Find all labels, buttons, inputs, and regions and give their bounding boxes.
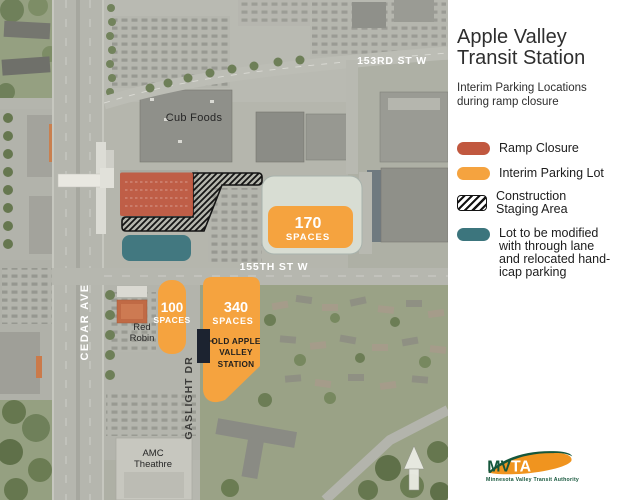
place-label-cub-foods: Cub Foods [166,112,223,124]
subtitle-line-2: during ramp closure [457,96,622,110]
legend: Ramp Closure Interim Parking Lot Constru… [457,142,622,279]
modified-label-line-4: icap parking [499,266,610,279]
modified-lot-swatch [457,228,490,241]
place-label-old-station-2: VALLEY [219,348,253,357]
legend-item-ramp-closure: Ramp Closure [457,142,622,155]
place-label-amc-1: AMC [142,448,163,459]
mvta-logo-graphic: MVTA [486,448,580,476]
logo-acronym-mv: MV [487,458,511,475]
page-subtitle: Interim Parking Locations during ramp cl… [457,82,622,109]
street-label-153rd: 153RD ST W [357,55,427,67]
title-line-1: Apple Valley [457,27,622,48]
legend-item-modified-lot: Lot to be modified with through lane and… [457,227,622,279]
aerial-map: 153RD ST W 155TH ST W CEDAR AVE GASLIGHT… [0,0,448,500]
logo-acronym: MVTA [487,458,531,475]
staging-label-line-2: Staging Area [496,203,568,216]
legend-label-interim-parking: Interim Parking Lot [499,167,604,180]
modified-lot-area [122,235,191,261]
lot-100-value: 100 [161,300,184,315]
ramp-closure-swatch [457,142,490,155]
info-panel: Apple Valley Transit Station Interim Par… [448,0,628,500]
lot-170-unit: SPACES [286,232,330,243]
legend-item-staging-area: Construction Staging Area [457,190,622,216]
page-title: Apple Valley Transit Station [457,27,622,69]
place-label-red-robin-1: Red [133,322,150,333]
logo-acronym-ta: TA [511,458,532,475]
place-label-amc-2: Theathre [134,459,172,470]
title-line-2: Transit Station [457,48,622,69]
lot-170-value: 170 [295,215,322,232]
logo-tagline: Minnesota Valley Transit Authority [486,477,586,483]
street-label-155th: 155TH ST W [240,261,309,273]
legend-label-staging-area: Construction Staging Area [496,190,568,216]
street-label-gaslight-dr: GASLIGHT DR [183,356,195,439]
subtitle-line-1: Interim Parking Locations [457,82,622,96]
legend-item-interim-parking: Interim Parking Lot [457,167,622,180]
interim-parking-swatch [457,167,490,180]
transit-parking-infographic: 153RD ST W 155TH ST W CEDAR AVE GASLIGHT… [0,0,628,500]
staging-area-swatch [457,195,487,211]
place-label-old-station-3: STATION [218,360,255,369]
ramp-closure-area [120,173,193,217]
legend-label-ramp-closure: Ramp Closure [499,142,579,155]
legend-label-modified-lot: Lot to be modified with through lane and… [499,227,610,279]
old-station-building [197,329,210,363]
lot-100-unit: SPACES [153,315,190,325]
street-label-cedar-ave: CEDAR AVE [79,283,91,360]
mvta-logo: MVTA Minnesota Valley Transit Authority [486,448,586,483]
place-label-old-station-1: OLD APPLE [211,337,260,346]
lot-340-value: 340 [224,300,248,316]
lot-340-unit: SPACES [212,316,253,326]
map-canvas: 153RD ST W 155TH ST W CEDAR AVE GASLIGHT… [0,0,448,500]
place-label-red-robin-2: Robin [130,333,155,344]
